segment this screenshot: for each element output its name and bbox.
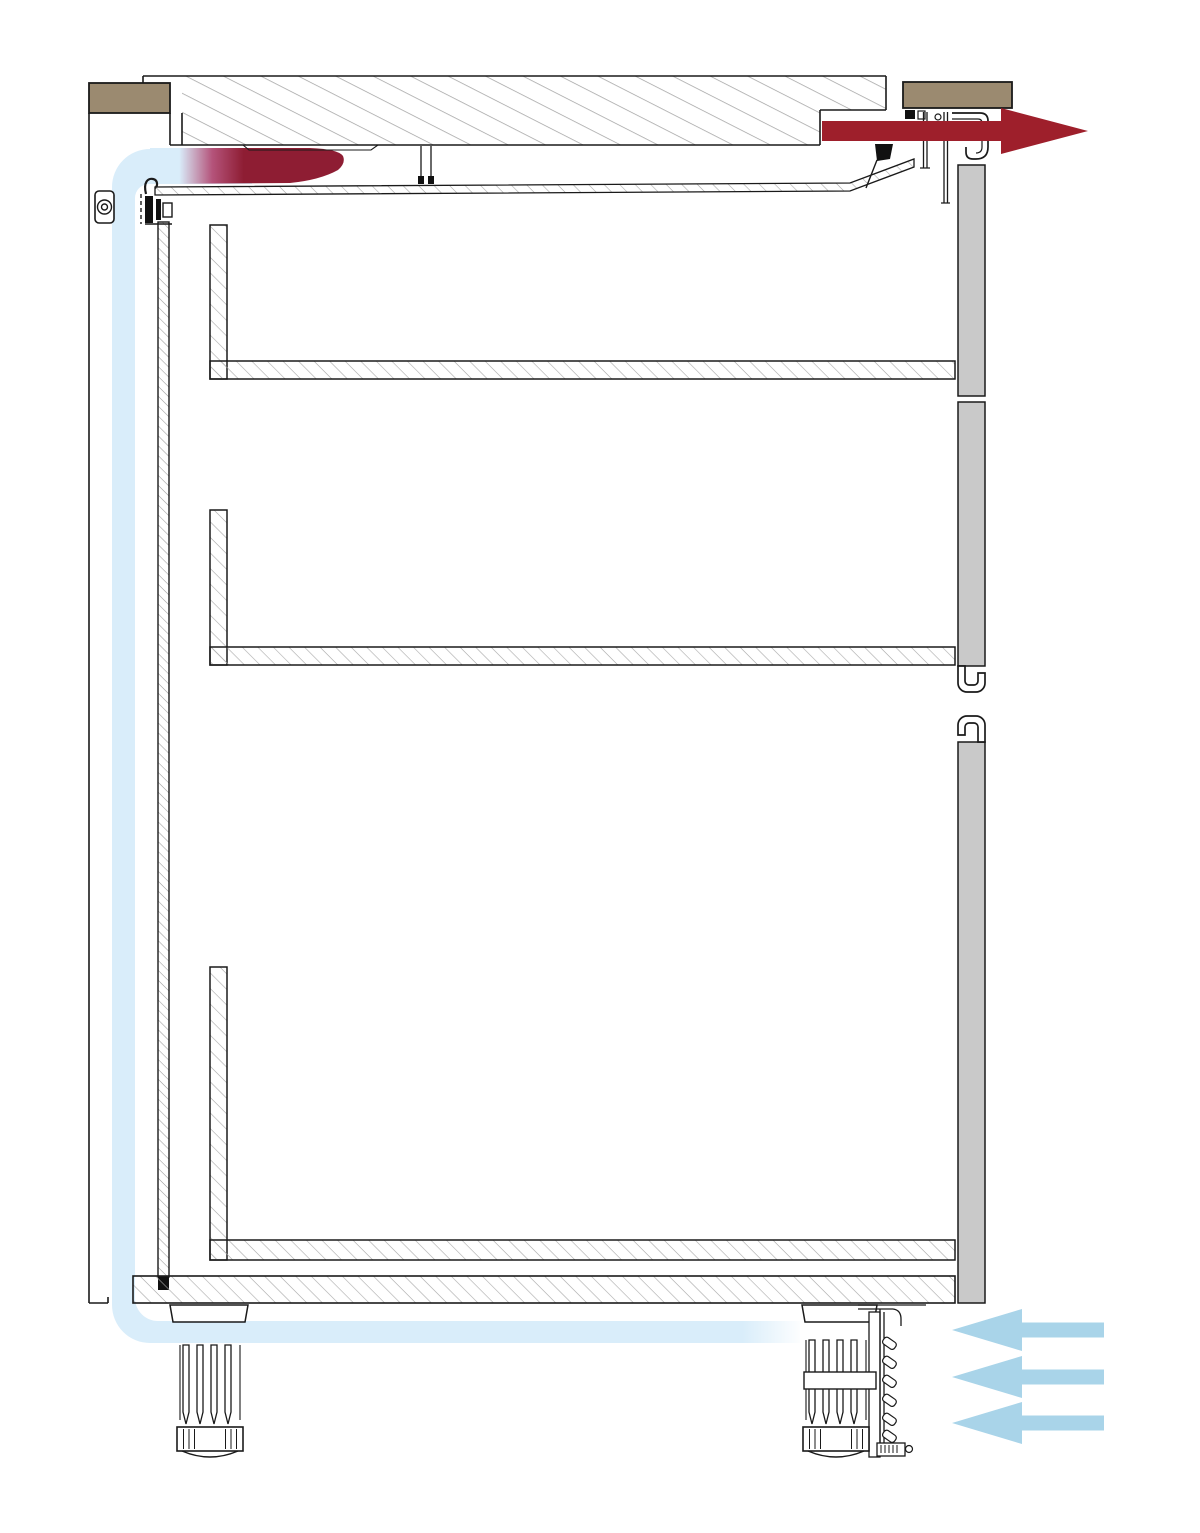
hinge-arm (163, 203, 172, 217)
worktop-core (182, 76, 886, 145)
panel-connector-lower-hook (958, 716, 985, 742)
cool-air-arrow-2 (952, 1356, 1104, 1398)
foot-adjuster-dome (808, 1451, 864, 1457)
panel-connector-upper-hook (958, 666, 985, 692)
panel-segment-middle (958, 402, 985, 666)
cool-air-fade (742, 1317, 804, 1347)
drawer-top (210, 225, 955, 379)
warm-air-out-arrow (822, 108, 1088, 154)
cool-air-in-arrows (952, 1309, 1104, 1444)
panel-segment-top (958, 165, 985, 396)
foot-plate (802, 1305, 877, 1322)
foot-rib (183, 1345, 189, 1424)
foot-rib (225, 1345, 231, 1424)
cool-air-arrow-1 (952, 1309, 1104, 1351)
drawer-back (210, 967, 227, 1260)
cool-air-arrow-3 (952, 1402, 1104, 1444)
clip-foot-left (418, 176, 424, 184)
top-panel-clip (421, 146, 431, 180)
door-outline (89, 113, 108, 1303)
bottom-panel (133, 1276, 955, 1303)
panel-segment-bottom (958, 742, 985, 1303)
bracket-screw-a (905, 110, 915, 119)
worktop-cap-right (903, 82, 1012, 108)
clip-foot-right (428, 176, 434, 184)
bracket-pin (935, 114, 941, 120)
drawer-bottom (210, 361, 955, 379)
foot-adjuster-nut (177, 1427, 243, 1451)
plinth-clip-bar (804, 1372, 876, 1389)
foot-rib (197, 1345, 203, 1424)
foot-right (802, 1305, 880, 1457)
bracket-wedge (875, 144, 893, 161)
drawer-bottom (210, 1240, 955, 1260)
warm-air-swoosh (150, 148, 344, 184)
foot-rib (211, 1345, 217, 1424)
foot-adjuster-nut (803, 1427, 869, 1451)
grille-end-curl (906, 1446, 913, 1453)
drawer-bottom (210, 647, 955, 665)
drawer-middle (210, 510, 955, 665)
foot-adjuster-dome (182, 1451, 238, 1457)
worktop (143, 76, 886, 150)
drawer-back (210, 225, 227, 379)
foot-plate (170, 1305, 248, 1322)
appliance-side-panel (958, 165, 985, 1303)
drawers (210, 225, 955, 1260)
drawer-back (210, 510, 227, 665)
hinge-body-a (145, 196, 153, 223)
cabinet-ventilation-diagram (0, 0, 1200, 1533)
door-panel (158, 222, 169, 1277)
worktop-cap-left (89, 83, 170, 113)
drawer-bottom-box (210, 967, 955, 1260)
hinge-body-b (156, 199, 161, 220)
